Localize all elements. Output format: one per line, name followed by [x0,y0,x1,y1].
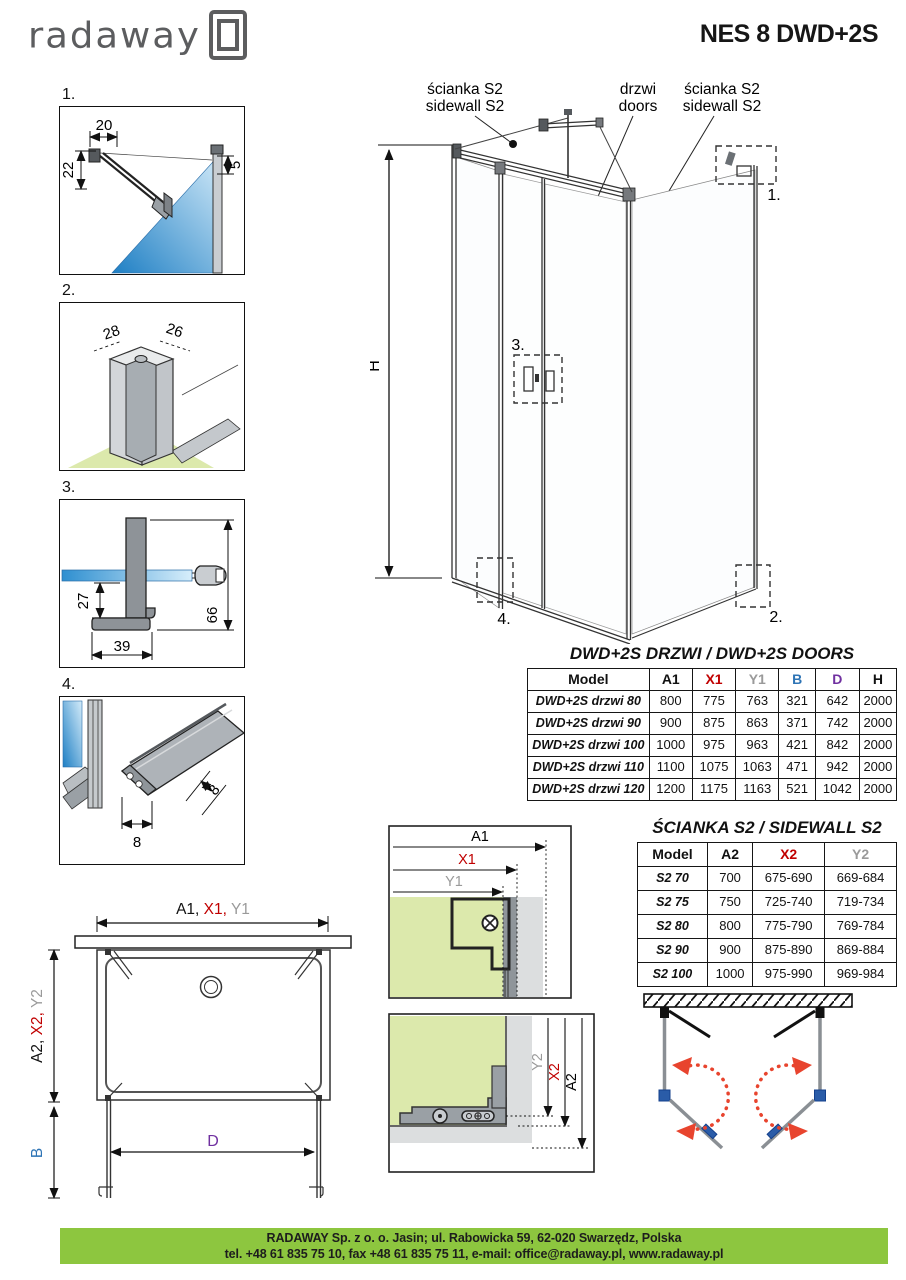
callout-4: 4. [497,611,510,628]
label-sidewall-left-line2: sidewall S2 [426,98,504,115]
column-header: Y1 [736,669,779,691]
detail-3-number: 3. [62,479,75,497]
value-cell: 875-890 [753,939,825,963]
detail-a2-label-x2: X2 [547,1063,563,1081]
label-sidewall-left-line1: ścianka S2 [427,81,503,98]
plan-top-dim-label: A1, X1, Y1 [176,901,250,918]
table-header-row: ModelA2X2Y2 [638,843,897,867]
value-cell: 2000 [859,757,896,779]
value-cell: 725-740 [753,891,825,915]
door-swing-drawing [636,988,881,1173]
value-cell: 1175 [692,779,735,801]
model-cell: DWD+2S drzwi 110 [528,757,650,779]
label-doors-line1: drzwi [620,81,656,98]
value-cell: 675-690 [753,867,825,891]
detail-3-box: 27 39 66 [59,499,245,668]
model-cell: S2 70 [638,867,708,891]
detail-3-dim-39: 39 [114,638,131,655]
main-diagram: ścianka S2 sidewall S2 drzwi doors ścian… [370,78,790,649]
brand-logo-text: radaway [28,17,201,52]
footer-contact: tel. +48 61 835 75 10, fax +48 61 835 75… [225,1246,724,1262]
value-cell: 769-784 [825,915,897,939]
value-cell: 963 [736,735,779,757]
detail-1-dim-20: 20 [96,117,113,134]
value-cell: 763 [736,691,779,713]
detail-1-number: 1. [62,86,75,104]
detail-3-dim-66: 66 [204,607,221,624]
detail-4-number: 4. [62,676,75,694]
column-header: X1 [692,669,735,691]
model-cell: S2 80 [638,915,708,939]
sidewall-table-title: ŚCIANKA S2 / SIDEWALL S2 [637,818,897,838]
value-cell: 1163 [736,779,779,801]
table-row: DWD+2S drzwi 909008758633717422000 [528,713,897,735]
model-cell: S2 90 [638,939,708,963]
value-cell: 775 [692,691,735,713]
footer-bar: RADAWAY Sp. z o. o. Jasin; ul. Rabowicka… [60,1228,888,1264]
value-cell: 900 [649,713,692,735]
value-cell: 869-884 [825,939,897,963]
value-cell: 421 [779,735,815,757]
column-header: Y2 [825,843,897,867]
column-header: H [859,669,896,691]
table-row: S2 1001000975-990969-984 [638,963,897,987]
value-cell: 1200 [649,779,692,801]
detail-a1-label-a1: A1 [471,829,489,845]
value-cell: 669-684 [825,867,897,891]
brand-logo: radaway [28,10,247,60]
table-row: S2 80800775-790769-784 [638,915,897,939]
model-cell: DWD+2S drzwi 100 [528,735,650,757]
doors-table-title: DWD+2S DRZWI / DWD+2S DOORS [527,644,897,664]
value-cell: 321 [779,691,815,713]
detail-2-dim-26: 26 [164,320,185,342]
table-row: DWD+2S drzwi 10010009759634218422000 [528,735,897,757]
callout-1: 1. [767,187,780,204]
height-dim-label: H [370,360,383,372]
value-cell: 800 [707,915,752,939]
label-sidewall-right-line2: sidewall S2 [683,98,761,115]
value-cell: 471 [779,757,815,779]
column-header: X2 [753,843,825,867]
model-cell: S2 100 [638,963,708,987]
value-cell: 800 [649,691,692,713]
detail-4-drawing: 8 8 [60,697,244,864]
detail-4-box: 8 8 [59,696,245,865]
value-cell: 775-790 [753,915,825,939]
table-row: S2 75750725-740719-734 [638,891,897,915]
value-cell: 900 [707,939,752,963]
model-cell: DWD+2S drzwi 80 [528,691,650,713]
label-sidewall-right-line1: ścianka S2 [684,81,760,98]
detail-4-dim-8-bottom: 8 [133,834,141,851]
value-cell: 842 [815,735,859,757]
value-cell: 875 [692,713,735,735]
value-cell: 719-734 [825,891,897,915]
value-cell: 742 [815,713,859,735]
value-cell: 521 [779,779,815,801]
plan-view-drawing: A1, X1, Y1 A2, X2, Y2 B D [30,890,375,1220]
label-doors-line2: doors [619,98,658,115]
detail-a1-label-y1: Y1 [445,874,463,890]
detail-a1-drawing: A1 X1 Y1 [388,822,573,1000]
value-cell: 2000 [859,779,896,801]
value-cell: 1075 [692,757,735,779]
value-cell: 2000 [859,713,896,735]
plan-left-dim-label: A2, X2, Y2 [30,989,46,1063]
main-diagram-drawing: ścianka S2 sidewall S2 drzwi doors ścian… [370,78,790,644]
model-cell: DWD+2S drzwi 120 [528,779,650,801]
detail-1-dim-5: 5 [227,161,244,169]
value-cell: 1000 [707,963,752,987]
sidewall-table: ModelA2X2Y2S2 70700675-690669-684S2 7575… [637,842,897,987]
table-row: DWD+2S drzwi 808007757633216422000 [528,691,897,713]
detail-2-box: 28 26 [59,302,245,471]
detail-a2-label-y2: Y2 [530,1053,546,1071]
detail-4-dim-8-side: 8 [205,782,224,799]
column-header: B [779,669,815,691]
value-cell: 969-984 [825,963,897,987]
column-header: Model [528,669,650,691]
value-cell: 863 [736,713,779,735]
value-cell: 642 [815,691,859,713]
value-cell: 371 [779,713,815,735]
value-cell: 1100 [649,757,692,779]
column-header: Model [638,843,708,867]
table-row: DWD+2S drzwi 1101100107510634719422000 [528,757,897,779]
table-row: S2 90900875-890869-884 [638,939,897,963]
detail-1-box: 20 22 5 [59,106,245,275]
column-header: A1 [649,669,692,691]
brand-logo-square-icon [209,10,247,60]
footer-address: RADAWAY Sp. z o. o. Jasin; ul. Rabowicka… [267,1230,682,1246]
model-cell: DWD+2S drzwi 90 [528,713,650,735]
plan-b-dim-label: B [30,1148,46,1158]
plan-view: A1, X1, Y1 A2, X2, Y2 B D [30,890,375,1225]
detail-a1: A1 X1 Y1 [388,822,573,1005]
value-cell: 2000 [859,691,896,713]
detail-3-drawing: 27 39 66 [60,500,244,667]
door-swing-diagram [636,988,881,1178]
column-header: D [815,669,859,691]
value-cell: 700 [707,867,752,891]
column-header: A2 [707,843,752,867]
value-cell: 750 [707,891,752,915]
value-cell: 1000 [649,735,692,757]
detail-2-drawing: 28 26 [60,303,244,470]
table-row: DWD+2S drzwi 12012001175116352110422000 [528,779,897,801]
detail-a2: Y2 X2 A2 [388,1010,596,1181]
doors-table-section: DWD+2S DRZWI / DWD+2S DOORS ModelA1X1Y1B… [527,644,897,801]
callout-3: 3. [511,337,524,354]
value-cell: 975 [692,735,735,757]
value-cell: 975-990 [753,963,825,987]
value-cell: 2000 [859,735,896,757]
table-header-row: ModelA1X1Y1BDH [528,669,897,691]
detail-1-drawing: 20 22 5 [60,107,244,274]
detail-a1-label-x1: X1 [458,852,476,868]
doors-table: ModelA1X1Y1BDHDWD+2S drzwi 8080077576332… [527,668,897,801]
plan-d-dim-label: D [207,1133,219,1150]
model-cell: S2 75 [638,891,708,915]
detail-1-dim-22: 22 [60,162,77,179]
detail-2-dim-28: 28 [101,322,122,344]
callout-2: 2. [769,609,782,626]
detail-a2-label-a2: A2 [564,1073,580,1091]
detail-a2-drawing: Y2 X2 A2 [388,1010,596,1176]
value-cell: 1063 [736,757,779,779]
detail-3-dim-27: 27 [75,593,92,610]
sidewall-table-section: ŚCIANKA S2 / SIDEWALL S2 ModelA2X2Y2S2 7… [637,818,897,987]
table-row: S2 70700675-690669-684 [638,867,897,891]
page-title: NES 8 DWD+2S [700,20,878,49]
detail-2-number: 2. [62,282,75,300]
value-cell: 1042 [815,779,859,801]
value-cell: 942 [815,757,859,779]
